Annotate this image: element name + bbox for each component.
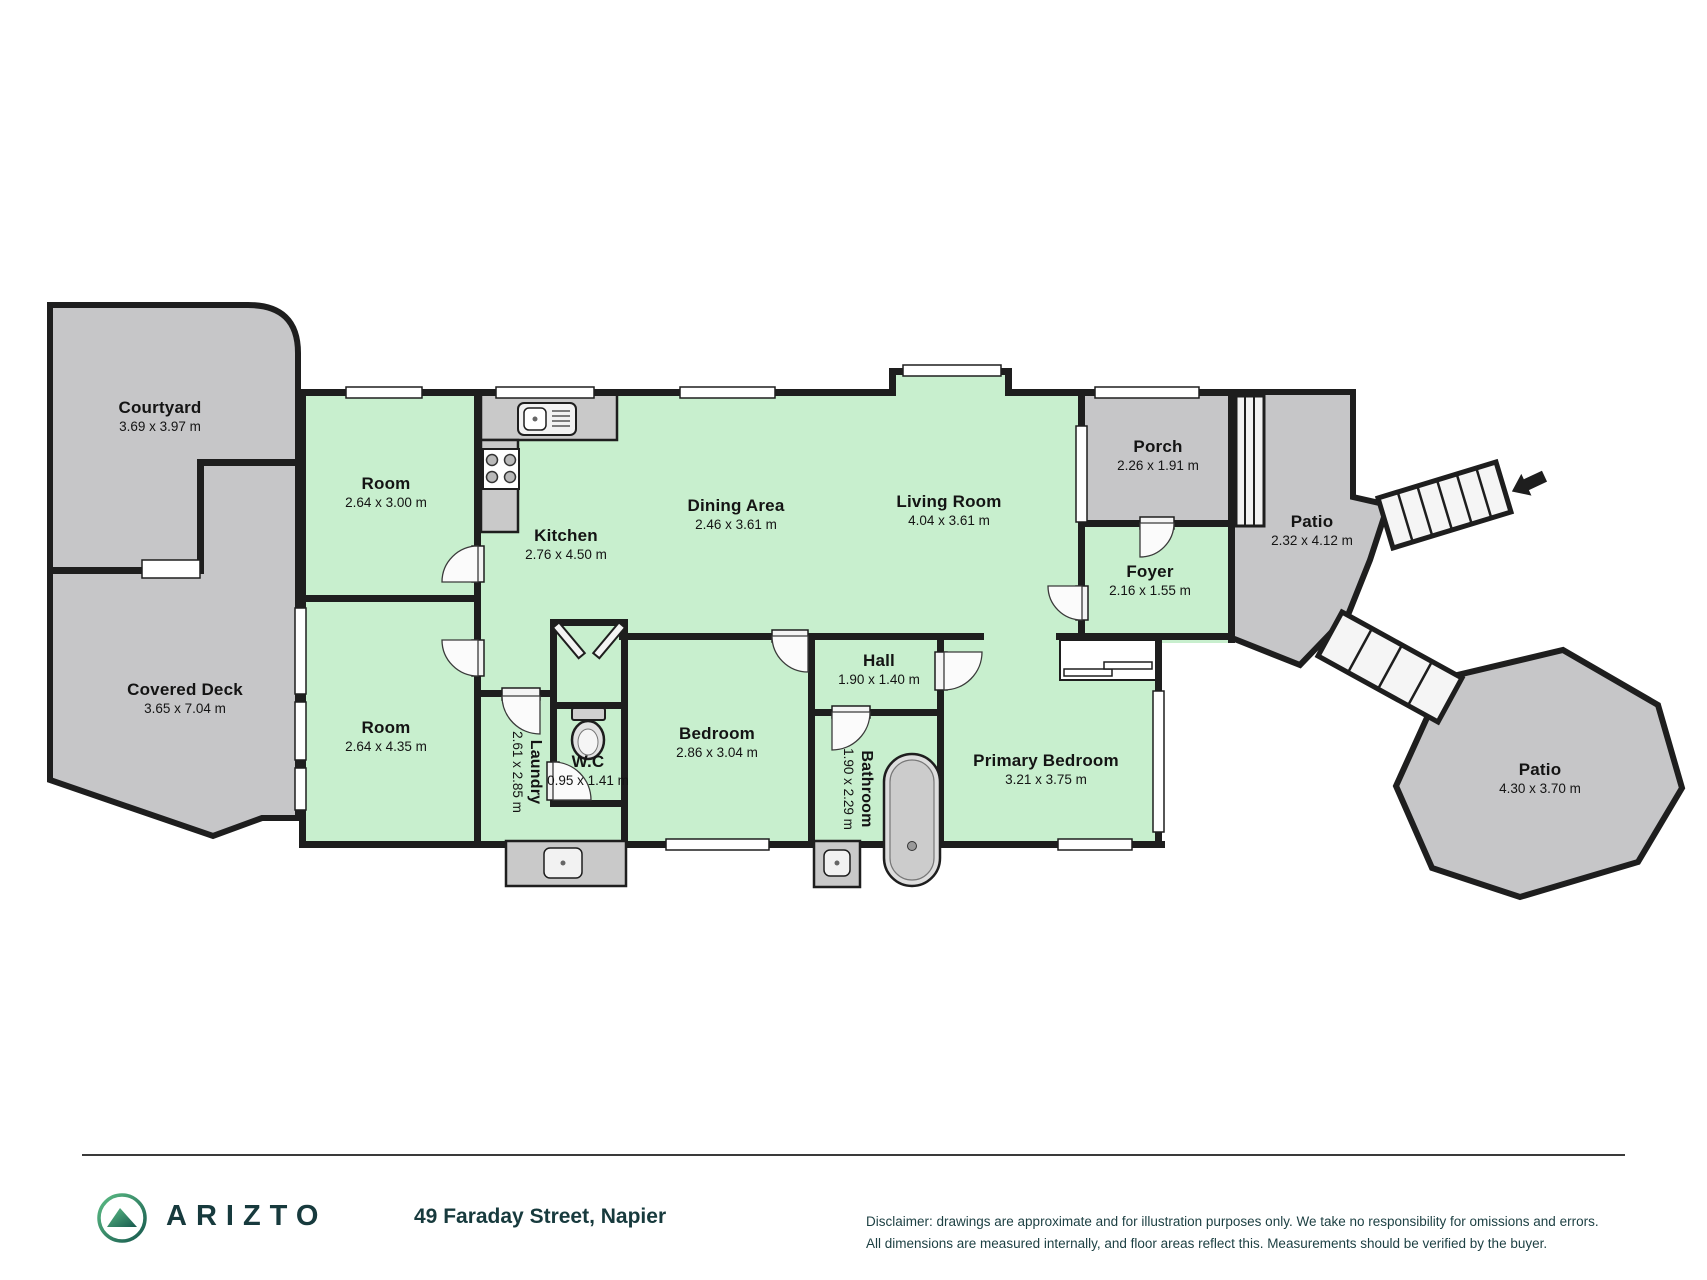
room-label-bedroom: Bedroom 2.86 x 3.04 m <box>676 724 758 760</box>
room-label-wc: W.C 0.95 x 1.41 m <box>547 752 629 788</box>
footer-divider <box>82 1154 1625 1156</box>
room-label-foyer: Foyer 2.16 x 1.55 m <box>1109 562 1191 598</box>
room-label-bathroom: Bathroom 1.90 x 2.29 m <box>841 748 875 830</box>
disclaimer-text: Disclaimer: drawings are approximate and… <box>866 1211 1636 1254</box>
patio-stairs-lower <box>1318 612 1462 722</box>
bathroom-vanity-icon <box>814 841 860 887</box>
bathtub-icon <box>884 754 940 886</box>
floorplan-drawing <box>0 0 1707 1280</box>
stove-icon <box>483 449 519 489</box>
room-label-hall: Hall 1.90 x 1.40 m <box>838 651 920 687</box>
property-address: 49 Faraday Street, Napier <box>414 1205 666 1229</box>
brand-name: ARIZTO <box>166 1200 327 1233</box>
room-label-dining-area: Dining Area 2.46 x 3.61 m <box>688 496 785 532</box>
floorplan-page: Courtyard 3.69 x 3.97 m Covered Deck 3.6… <box>0 0 1707 1280</box>
room-label-laundry: Laundry 2.61 x 2.85 m <box>510 731 544 813</box>
room-label-room-top: Room 2.64 x 3.00 m <box>345 474 427 510</box>
room-label-covered-deck: Covered Deck 3.65 x 7.04 m <box>127 680 243 716</box>
room-label-courtyard: Courtyard 3.69 x 3.97 m <box>118 398 201 434</box>
disclaimer-line-2: All dimensions are measured internally, … <box>866 1233 1636 1255</box>
arizto-logo-icon <box>96 1192 148 1244</box>
closet-sliding-doors <box>1060 640 1156 680</box>
kitchen-sink-icon <box>518 403 576 435</box>
porch-side-steps <box>1236 396 1264 526</box>
room-label-patio-lower: Patio 4.30 x 3.70 m <box>1499 760 1581 796</box>
deck-step-opening <box>142 560 200 578</box>
entry-stairs-upper <box>1378 462 1511 548</box>
room-label-patio-upper: Patio 2.32 x 4.12 m <box>1271 512 1353 548</box>
room-label-primary-bedroom: Primary Bedroom 3.21 x 3.75 m <box>973 751 1119 787</box>
room-label-kitchen: Kitchen 2.76 x 4.50 m <box>525 526 607 562</box>
laundry-tub-icon <box>506 841 626 886</box>
room-label-porch: Porch 2.26 x 1.91 m <box>1117 437 1199 473</box>
disclaimer-line-1: Disclaimer: drawings are approximate and… <box>866 1211 1636 1233</box>
entry-arrow-icon <box>1507 465 1550 502</box>
room-label-room-bottom: Room 2.64 x 4.35 m <box>345 718 427 754</box>
room-label-living-room: Living Room 4.04 x 3.61 m <box>896 492 1001 528</box>
